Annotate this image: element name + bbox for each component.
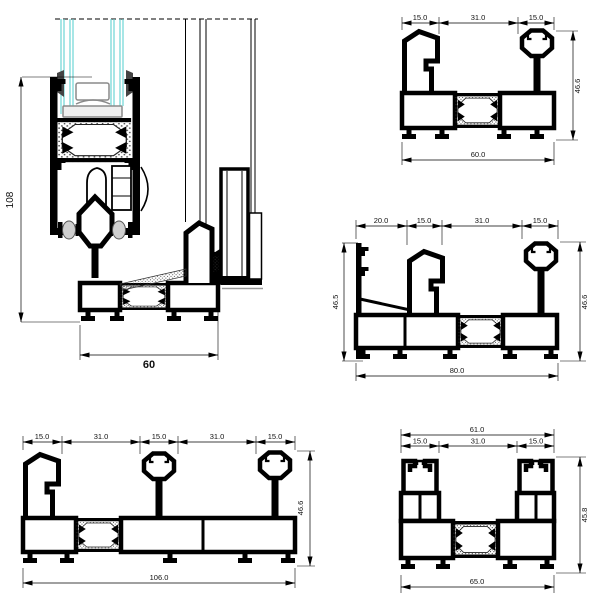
dim-label: 15.0 bbox=[152, 432, 167, 441]
dim-label: 45.8 bbox=[580, 508, 589, 523]
side-cover-profile bbox=[250, 213, 262, 279]
profile-106-drawing: 15.0 31.0 15.0 31.0 15.0 46.6 106.0 bbox=[23, 432, 315, 588]
dim-label: 15.0 bbox=[529, 13, 544, 22]
glazing-spacer bbox=[76, 83, 109, 100]
dim-label: 15.0 bbox=[417, 216, 432, 225]
section-view-frame-80: 20.0 15.0 31.0 15.0 46.5 46.6 8 bbox=[330, 195, 600, 395]
setting-block bbox=[63, 106, 122, 117]
dim-label: 31.0 bbox=[471, 437, 486, 446]
dim-label: 80.0 bbox=[450, 366, 465, 375]
dim-label: 46.5 bbox=[331, 295, 340, 310]
fixed-panel-profile bbox=[221, 169, 248, 283]
dim-label: 20.0 bbox=[374, 216, 389, 225]
dim-label: 15.0 bbox=[268, 432, 283, 441]
profile-80-drawing: 20.0 15.0 31.0 15.0 46.5 46.6 8 bbox=[331, 216, 589, 381]
section-view-frame-65: 61.0 15.0 31.0 15.0 45.8 65.0 bbox=[380, 415, 600, 600]
dim-label: 46.6 bbox=[573, 79, 582, 94]
dim-label: 31.0 bbox=[94, 432, 109, 441]
dim-label: 46.6 bbox=[296, 501, 305, 516]
dim-label-108: 108 bbox=[5, 191, 16, 208]
sill-section-drawing: 108 60 bbox=[5, 19, 263, 371]
frame-track-upstand bbox=[186, 223, 212, 283]
dim-label: 31.0 bbox=[475, 216, 490, 225]
section-view-vertical: 108 60 bbox=[0, 0, 330, 410]
dim-label: 15.0 bbox=[529, 437, 544, 446]
roller-guide bbox=[79, 197, 112, 246]
dim-label: 15.0 bbox=[35, 432, 50, 441]
dim-label: 61.0 bbox=[470, 425, 485, 434]
dim-label: 65.0 bbox=[470, 577, 485, 586]
profile-60-drawing: 15.0 31.0 15.0 46.6 60.0 bbox=[402, 13, 582, 165]
profile-65-drawing: 61.0 15.0 31.0 15.0 45.8 65.0 bbox=[401, 425, 589, 593]
dim-label: 31.0 bbox=[210, 432, 225, 441]
dim-label: 60.0 bbox=[471, 150, 486, 159]
dim-label: 15.0 bbox=[413, 13, 428, 22]
dim-label: 15.0 bbox=[413, 437, 428, 446]
section-view-frame-60: 15.0 31.0 15.0 46.6 60.0 bbox=[380, 0, 600, 180]
section-view-frame-106: 15.0 31.0 15.0 31.0 15.0 46.6 106.0 bbox=[10, 420, 330, 600]
dim-label: 15.0 bbox=[533, 216, 548, 225]
cad-drawing-sheet: 108 60 15.0 31.0 15.0 bbox=[0, 0, 600, 600]
dim-label: 31.0 bbox=[471, 13, 486, 22]
dim-label: 46.6 bbox=[580, 295, 589, 310]
dim-label-60: 60 bbox=[143, 359, 155, 371]
dim-label: 106.0 bbox=[150, 573, 169, 582]
